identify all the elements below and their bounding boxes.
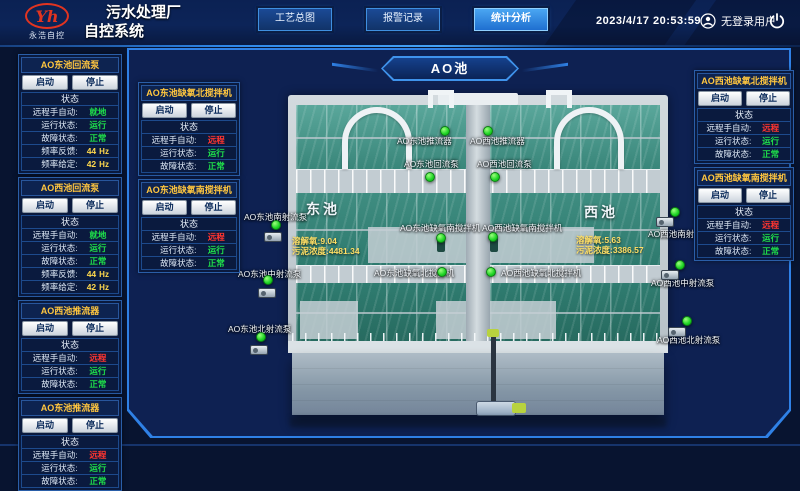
stat-value: 3386.57 bbox=[613, 245, 644, 255]
pool-stats: 溶解氧:5.63污泥浓度:3386.57 bbox=[576, 235, 644, 255]
panel-buttons: 启动 停止 bbox=[21, 416, 119, 435]
row-value: 正常 bbox=[751, 245, 790, 257]
row-value: 正常 bbox=[78, 132, 118, 144]
start-button[interactable]: 启动 bbox=[142, 200, 187, 215]
start-button[interactable]: 启动 bbox=[698, 188, 742, 203]
status-row: 频率给定: 42Hz bbox=[21, 158, 119, 171]
status-row: 运行状态: 运行 bbox=[21, 462, 119, 475]
row-unit: Hz bbox=[99, 270, 109, 279]
row-value: 正常 bbox=[751, 148, 790, 160]
panel-buttons: 启动 停止 bbox=[697, 89, 791, 108]
row-value: 运行 bbox=[78, 119, 118, 131]
status-row: 故障状态: 正常 bbox=[21, 378, 119, 391]
panel-column-left-outer: AO东池回流泵 启动 停止 状态 远程手自动: 就地 运行状态: 运行 故障状态… bbox=[18, 54, 122, 491]
status-row: 频率给定: 42Hz bbox=[21, 281, 119, 294]
status-header: 状态 bbox=[21, 92, 119, 106]
device-panel: AO东池缺氧北搅拌机 启动 停止 状态 远程手自动: 远程 运行状态: 运行 故… bbox=[138, 82, 240, 176]
row-label: 远程手自动: bbox=[22, 449, 78, 461]
row-value: 42Hz bbox=[78, 158, 118, 170]
row-label: 频率给定: bbox=[22, 158, 78, 170]
panel-buttons: 启动 停止 bbox=[21, 319, 119, 338]
pump-icon bbox=[668, 327, 686, 337]
panel-buttons: 启动 停止 bbox=[697, 186, 791, 205]
row-value: 正常 bbox=[78, 378, 118, 390]
pump-icon bbox=[258, 288, 276, 298]
marker-label: AO东池回流泵 bbox=[404, 158, 459, 170]
device-panel: AO东池推流器 启动 停止 状态 远程手自动: 远程 运行状态: 运行 故障状态… bbox=[18, 397, 122, 491]
row-value: 就地 bbox=[78, 229, 118, 241]
row-label: 运行状态: bbox=[142, 147, 197, 159]
row-label: 故障状态: bbox=[22, 132, 78, 144]
status-row: 故障状态: 正常 bbox=[21, 132, 119, 145]
row-value: 运行 bbox=[751, 135, 790, 147]
panel-title: AO西池回流泵 bbox=[21, 180, 119, 196]
status-row: 远程手自动: 就地 bbox=[21, 229, 119, 242]
panel-column-right: AO西池缺氧北搅拌机 启动 停止 状态 远程手自动: 远程 运行状态: 运行 故… bbox=[694, 70, 794, 261]
row-value: 远程 bbox=[78, 449, 118, 461]
stat-value: 9.04 bbox=[320, 236, 337, 246]
status-row: 故障状态: 正常 bbox=[141, 160, 237, 173]
panel-title: AO西池缺氧北搅拌机 bbox=[697, 73, 791, 89]
status-dot-icon[interactable] bbox=[425, 172, 435, 182]
row-value: 远程 bbox=[197, 231, 236, 243]
stat-label: 溶解氧: bbox=[292, 236, 320, 246]
row-value: 42Hz bbox=[78, 281, 118, 293]
status-dot-icon[interactable] bbox=[490, 172, 500, 182]
marker-label: AO西池推流器 bbox=[470, 135, 525, 147]
pool-stat-line: 溶解氧:9.04 bbox=[292, 236, 360, 246]
panel-buttons: 启动 停止 bbox=[141, 198, 237, 217]
row-value: 运行 bbox=[78, 462, 118, 474]
stat-label: 污泥浓度: bbox=[576, 245, 613, 255]
status-row: 运行状态: 运行 bbox=[21, 119, 119, 132]
panel-title: AO东池缺氧南搅拌机 bbox=[141, 182, 237, 198]
status-dot-icon[interactable] bbox=[486, 267, 496, 277]
row-unit: Hz bbox=[99, 160, 109, 169]
row-value: 运行 bbox=[78, 365, 118, 377]
row-label: 故障状态: bbox=[142, 160, 197, 172]
row-label: 运行状态: bbox=[698, 135, 751, 147]
stop-button[interactable]: 停止 bbox=[746, 188, 790, 203]
row-label: 远程手自动: bbox=[22, 229, 78, 241]
marker-label: AO东池推流器 bbox=[397, 135, 452, 147]
row-label: 运行状态: bbox=[22, 365, 78, 377]
row-label: 远程手自动: bbox=[22, 106, 78, 118]
row-value: 正常 bbox=[197, 160, 236, 172]
device-panel: AO西池缺氧南搅拌机 启动 停止 状态 远程手自动: 远程 运行状态: 运行 故… bbox=[694, 167, 794, 261]
marker-label: AO西池缺氧北搅拌机 bbox=[501, 267, 581, 279]
status-row: 远程手自动: 就地 bbox=[21, 106, 119, 119]
status-header: 状态 bbox=[141, 217, 237, 231]
stop-button[interactable]: 停止 bbox=[746, 91, 790, 106]
row-value: 正常 bbox=[78, 255, 118, 267]
panel-title: AO西池推流器 bbox=[21, 303, 119, 319]
stop-button[interactable]: 停止 bbox=[72, 321, 118, 336]
row-value: 运行 bbox=[197, 147, 236, 159]
stop-button[interactable]: 停止 bbox=[72, 198, 118, 213]
device-panel: AO西池推流器 启动 停止 状态 远程手自动: 远程 运行状态: 运行 故障状态… bbox=[18, 300, 122, 394]
status-header: 状态 bbox=[21, 435, 119, 449]
pump-icon bbox=[250, 345, 268, 355]
status-dot-icon[interactable] bbox=[440, 126, 450, 136]
row-label: 故障状态: bbox=[22, 378, 78, 390]
status-dot-icon[interactable] bbox=[488, 232, 498, 242]
row-value: 正常 bbox=[197, 257, 236, 269]
panel-title: AO东池推流器 bbox=[21, 400, 119, 416]
status-header: 状态 bbox=[697, 205, 791, 219]
row-label: 故障状态: bbox=[22, 255, 78, 267]
row-value: 运行 bbox=[751, 232, 790, 244]
row-label: 故障状态: bbox=[698, 148, 751, 160]
row-value: 运行 bbox=[78, 242, 118, 254]
pool-stat-line: 污泥浓度:4481.34 bbox=[292, 246, 360, 256]
status-row: 远程手自动: 远程 bbox=[141, 231, 237, 244]
row-label: 远程手自动: bbox=[142, 231, 197, 243]
row-value: 运行 bbox=[197, 244, 236, 256]
start-button[interactable]: 启动 bbox=[22, 75, 68, 90]
status-header: 状态 bbox=[21, 338, 119, 352]
row-label: 远程手自动: bbox=[698, 122, 751, 134]
status-row: 运行状态: 运行 bbox=[21, 242, 119, 255]
row-value: 44Hz bbox=[78, 145, 118, 157]
status-row: 运行状态: 运行 bbox=[141, 147, 237, 160]
row-label: 频率反馈: bbox=[22, 268, 78, 280]
row-value: 远程 bbox=[197, 134, 236, 146]
panel-title: AO东池缺氧北搅拌机 bbox=[141, 85, 237, 101]
row-value: 正常 bbox=[78, 475, 118, 487]
stop-button[interactable]: 停止 bbox=[191, 200, 236, 215]
status-dot-icon[interactable] bbox=[436, 233, 446, 243]
panel-buttons: 启动 停止 bbox=[21, 196, 119, 215]
start-button[interactable]: 启动 bbox=[22, 418, 68, 433]
status-row: 运行状态: 运行 bbox=[141, 244, 237, 257]
pump-icon bbox=[656, 217, 674, 227]
status-dot-icon[interactable] bbox=[271, 220, 281, 230]
row-label: 运行状态: bbox=[698, 232, 751, 244]
marker-label: AO西池北射流泵 bbox=[657, 334, 720, 346]
row-unit: Hz bbox=[99, 283, 109, 292]
start-button[interactable]: 启动 bbox=[142, 103, 187, 118]
row-label: 故障状态: bbox=[142, 257, 197, 269]
device-panel: AO东池回流泵 启动 停止 状态 远程手自动: 就地 运行状态: 运行 故障状态… bbox=[18, 54, 122, 174]
pump-icon bbox=[661, 270, 679, 280]
status-dot-icon[interactable] bbox=[682, 316, 692, 326]
row-label: 运行状态: bbox=[22, 119, 78, 131]
status-dot-icon[interactable] bbox=[437, 267, 447, 277]
status-row: 故障状态: 正常 bbox=[141, 257, 237, 270]
status-dot-icon[interactable] bbox=[263, 275, 273, 285]
pool-stats: 溶解氧:9.04污泥浓度:4481.34 bbox=[292, 236, 360, 256]
pool-stat-line: 污泥浓度:3386.57 bbox=[576, 245, 644, 255]
pool-stat-line: 溶解氧:5.63 bbox=[576, 235, 644, 245]
row-value: 44Hz bbox=[78, 268, 118, 280]
status-row: 远程手自动: 远程 bbox=[697, 219, 791, 232]
status-dot-icon[interactable] bbox=[483, 126, 493, 136]
row-label: 远程手自动: bbox=[142, 134, 197, 146]
status-row: 运行状态: 运行 bbox=[21, 365, 119, 378]
stop-button[interactable]: 停止 bbox=[72, 418, 118, 433]
status-row: 运行状态: 运行 bbox=[697, 135, 791, 148]
status-dot-icon[interactable] bbox=[670, 207, 680, 217]
row-label: 故障状态: bbox=[698, 245, 751, 257]
row-value: 远程 bbox=[751, 122, 790, 134]
status-row: 远程手自动: 远程 bbox=[141, 134, 237, 147]
status-dot-icon[interactable] bbox=[675, 260, 685, 270]
status-row: 频率反馈: 44Hz bbox=[21, 268, 119, 281]
start-button[interactable]: 启动 bbox=[698, 91, 742, 106]
row-value: 远程 bbox=[78, 352, 118, 364]
row-value: 远程 bbox=[751, 219, 790, 231]
marker-label: AO西池回流泵 bbox=[477, 158, 532, 170]
status-row: 故障状态: 正常 bbox=[21, 475, 119, 488]
row-label: 运行状态: bbox=[22, 462, 78, 474]
device-panel: AO西池回流泵 启动 停止 状态 远程手自动: 就地 运行状态: 运行 故障状态… bbox=[18, 177, 122, 297]
stat-value: 5.63 bbox=[604, 235, 621, 245]
row-label: 频率反馈: bbox=[22, 145, 78, 157]
status-row: 故障状态: 正常 bbox=[697, 245, 791, 258]
pool-name: 东池 bbox=[306, 199, 340, 219]
pump-icon bbox=[264, 232, 282, 242]
status-row: 远程手自动: 远程 bbox=[21, 449, 119, 462]
row-label: 运行状态: bbox=[22, 242, 78, 254]
status-header: 状态 bbox=[697, 108, 791, 122]
pool-name: 西池 bbox=[584, 202, 618, 222]
status-row: 远程手自动: 远程 bbox=[697, 122, 791, 135]
status-row: 频率反馈: 44Hz bbox=[21, 145, 119, 158]
status-header: 状态 bbox=[21, 215, 119, 229]
status-row: 故障状态: 正常 bbox=[697, 148, 791, 161]
device-panel: AO西池缺氧北搅拌机 启动 停止 状态 远程手自动: 远程 运行状态: 运行 故… bbox=[694, 70, 794, 164]
row-unit: Hz bbox=[99, 147, 109, 156]
panel-title: AO东池回流泵 bbox=[21, 57, 119, 73]
panel-column-left-inner: AO东池缺氧北搅拌机 启动 停止 状态 远程手自动: 远程 运行状态: 运行 故… bbox=[138, 82, 240, 273]
panel-title: AO西池缺氧南搅拌机 bbox=[697, 170, 791, 186]
status-row: 远程手自动: 远程 bbox=[21, 352, 119, 365]
stat-value: 4481.34 bbox=[329, 246, 360, 256]
row-label: 运行状态: bbox=[142, 244, 197, 256]
status-dot-icon[interactable] bbox=[256, 332, 266, 342]
panel-buttons: 启动 停止 bbox=[21, 73, 119, 92]
row-label: 远程手自动: bbox=[698, 219, 751, 231]
row-label: 频率给定: bbox=[22, 281, 78, 293]
row-label: 远程手自动: bbox=[22, 352, 78, 364]
row-label: 故障状态: bbox=[22, 475, 78, 487]
stop-button[interactable]: 停止 bbox=[72, 75, 118, 90]
start-button[interactable]: 启动 bbox=[22, 198, 68, 213]
stat-label: 溶解氧: bbox=[576, 235, 604, 245]
panel-buttons: 启动 停止 bbox=[141, 101, 237, 120]
status-header: 状态 bbox=[141, 120, 237, 134]
status-row: 故障状态: 正常 bbox=[21, 255, 119, 268]
stop-button[interactable]: 停止 bbox=[191, 103, 236, 118]
stat-label: 污泥浓度: bbox=[292, 246, 329, 256]
status-row: 运行状态: 运行 bbox=[697, 232, 791, 245]
row-value: 就地 bbox=[78, 106, 118, 118]
device-panel: AO东池缺氧南搅拌机 启动 停止 状态 远程手自动: 远程 运行状态: 运行 故… bbox=[138, 179, 240, 273]
start-button[interactable]: 启动 bbox=[22, 321, 68, 336]
